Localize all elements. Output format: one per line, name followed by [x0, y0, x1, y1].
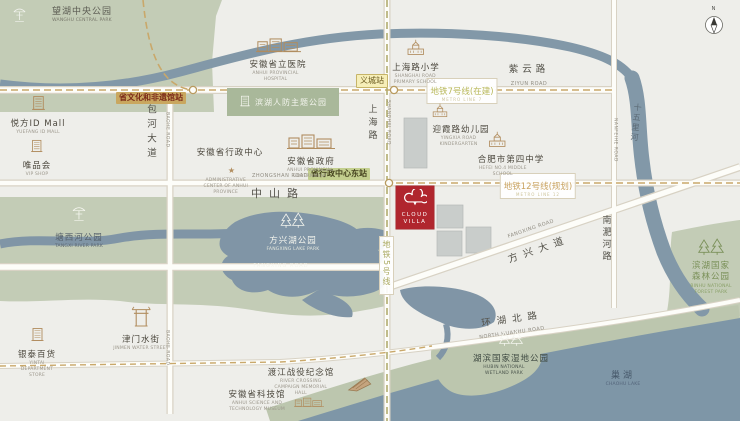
poi-hospital: 安徽省立医院 ANHUI PROVINCIAL HOSPITAL — [249, 38, 306, 83]
poi-gov-zh: 安徽省政府 — [286, 155, 336, 167]
poi-jinmen: 津门水街 JINMEN WATER STREET — [113, 304, 169, 352]
lake-chaohu-en: CHAOHU LAKE — [606, 382, 641, 388]
poi-yintai-en: YINTAI DEPARTMENT STORE — [13, 361, 61, 379]
star-icon: ★ — [228, 166, 235, 175]
trees-icon — [267, 212, 320, 233]
road-label-nanfeihe-en: NANFEIHE ROAD — [613, 118, 618, 162]
park-wanghu-en: WANGHU CENTRAL PARK — [52, 18, 112, 24]
lake-chaohu: 巢湖 CHAOHU LAKE — [606, 368, 641, 388]
project-name-line1: CLOUD — [402, 212, 429, 219]
metro-line7-name: 地铁7号线(在建) — [430, 87, 493, 97]
poi-admin-center: 安徽省行政中心★ ADMINISTRATIVE CENTER OF ANHUI … — [197, 146, 264, 196]
park-tangxi-zh: 塘西河公园 — [55, 231, 103, 243]
poi-primary-school: 上海路小学 SHANGHAI ROAD PRIMARY SCHOOL — [392, 39, 440, 86]
location-map: 紫云路 ZIYUN ROAD 包河大道 BAOHE ROAD BAOHE ROA… — [0, 0, 740, 421]
park-fangxinghu-en: FANGXING LAKE PARK — [267, 247, 320, 253]
road-label-baohe-zh: 包河大道 — [143, 104, 157, 162]
trees-icon — [685, 238, 737, 260]
poi-scitech-zh: 安徽省科技馆 — [226, 388, 288, 400]
project-marker-cloud-villa: CLOUD VILLA — [396, 186, 434, 229]
road-label-baohe-en: BAOHE ROAD — [165, 112, 170, 147]
park-tangxi: 塘西河公园 TANGXI RIVER PARK — [55, 202, 103, 250]
poi-scitech: 安徽省科技馆 ANHUI SCIENCE AND TECHNOLOGY MUSE… — [226, 388, 288, 413]
poi-scitech-en: ANHUI SCIENCE AND TECHNOLOGY MUSEUM — [226, 401, 288, 413]
poi-yintai: 银泰百货 YINTAI DEPARTMENT STORE — [13, 326, 61, 379]
park-tangxi-en: TANGXI RIVER PARK — [55, 244, 103, 250]
road-label-shanghai-zh: 上海路 — [366, 104, 379, 143]
cloud-villa-logo-icon — [403, 189, 427, 212]
project-name-line2: VILLA — [404, 219, 427, 226]
compass: N — [702, 6, 726, 40]
poi-hospital-en: ANHUI PROVINCIAL HOSPITAL — [249, 71, 301, 83]
park-renfang-zh: 滨湖人防主题公园 — [255, 97, 327, 108]
poi-primary-zh: 上海路小学 — [392, 61, 440, 73]
building-icon — [10, 94, 65, 116]
memorial-icon — [344, 376, 372, 396]
poi-yintai-zh: 银泰百货 — [13, 348, 61, 360]
park-forest: 滨湖国家森林公园 BINHU NATIONAL FOREST PARK — [685, 238, 737, 296]
park-wanghu-zh: 望湖中央公园 — [52, 4, 112, 17]
metro-line12-name: 地铁12号线(规划) — [504, 182, 572, 192]
poi-primary-en: SHANGHAI ROAD PRIMARY SCHOOL — [392, 74, 438, 86]
station-yicheng: 义城站 — [356, 74, 388, 88]
building-icon — [239, 93, 251, 112]
poi-idmall-en: YUEFANG ID MALL — [10, 130, 65, 136]
station-wenhua: 省文化和非遗馆站 — [116, 92, 186, 104]
metro-line12-sub: METRO LINE 12 — [504, 193, 572, 197]
trees-icon — [473, 330, 549, 351]
compass-icon — [703, 12, 725, 36]
park-fangxinghu-zh: 方兴湖公园 — [267, 234, 320, 246]
road-label-nanfeihe-zh: 南淝河路 — [600, 215, 613, 263]
poi-memorial-zh: 渡江战役纪念馆 — [268, 366, 335, 378]
poi-gov: 安徽省政府 ANHUI PROVINCIAL GOVERNMENT — [286, 134, 336, 180]
school-icon — [390, 103, 489, 122]
park-wanghu: 望湖中央公园 WANGHU CENTRAL PARK — [52, 4, 112, 24]
poi-idmall: 悦方ID Mall YUEFANG ID MALL — [10, 94, 65, 136]
park-wetland-en: HUBIN NATIONAL WETLAND PARK — [473, 365, 535, 377]
building-icon — [13, 326, 61, 347]
school-icon — [450, 131, 545, 152]
poi-admin-zh: 安徽省行政中心 — [197, 146, 264, 158]
arch-icon — [113, 304, 169, 332]
buildings-icon — [249, 38, 306, 57]
building-icon — [23, 138, 52, 158]
map-base — [0, 0, 740, 421]
lake-chaohu-zh: 巢湖 — [606, 368, 641, 381]
buildings-icon — [286, 134, 336, 154]
poi-hospital-zh: 安徽省立医院 — [249, 58, 306, 70]
metro-line5-label: 地铁5号线 — [379, 236, 394, 295]
park-renfang-box: 滨湖人防主题公园 — [227, 88, 339, 116]
poi-vipshop-en: VIP SHOP — [23, 172, 52, 178]
building-icon — [294, 393, 324, 412]
metro-line7-sub: METRO LINE 7 — [430, 98, 493, 102]
metro-line5-name: 地铁5号线 — [381, 240, 392, 287]
poi-admin-en: ADMINISTRATIVE CENTER OF ANHUI PROVINCE — [197, 178, 255, 196]
poi-jinmen-en: JINMEN WATER STREET — [113, 346, 169, 352]
poi-school4-en: HEFEI NO.4 MIDDLE SCHOOL — [478, 166, 528, 178]
poi-idmall-zh: 悦方ID Mall — [10, 117, 65, 129]
poi-vipshop-zh: 唯品会 — [23, 159, 52, 171]
park-fangxinghu: 方兴湖公园 FANGXING LAKE PARK — [267, 212, 320, 253]
park-wetland-zh: 湖滨国家湿地公园 — [473, 352, 549, 364]
pavilion-icon — [12, 4, 27, 30]
poi-school4-zh: 合肥市第四中学 — [478, 153, 545, 165]
pavilion-icon — [55, 202, 103, 230]
poi-school4: 合肥市第四中学 HEFEI NO.4 MIDDLE SCHOOL — [478, 131, 545, 178]
poi-vipshop: 唯品会 VIP SHOP — [23, 138, 52, 178]
poi-jinmen-zh: 津门水街 — [113, 333, 169, 345]
park-wetland: 湖滨国家湿地公园 HUBIN NATIONAL WETLAND PARK — [473, 330, 549, 377]
school-icon — [392, 39, 440, 60]
park-forest-en: BINHU NATIONAL FOREST PARK — [685, 284, 737, 296]
poi-gov-en: ANHUI PROVINCIAL GOVERNMENT — [286, 168, 334, 180]
park-forest-zh: 滨湖国家森林公园 — [690, 261, 732, 283]
